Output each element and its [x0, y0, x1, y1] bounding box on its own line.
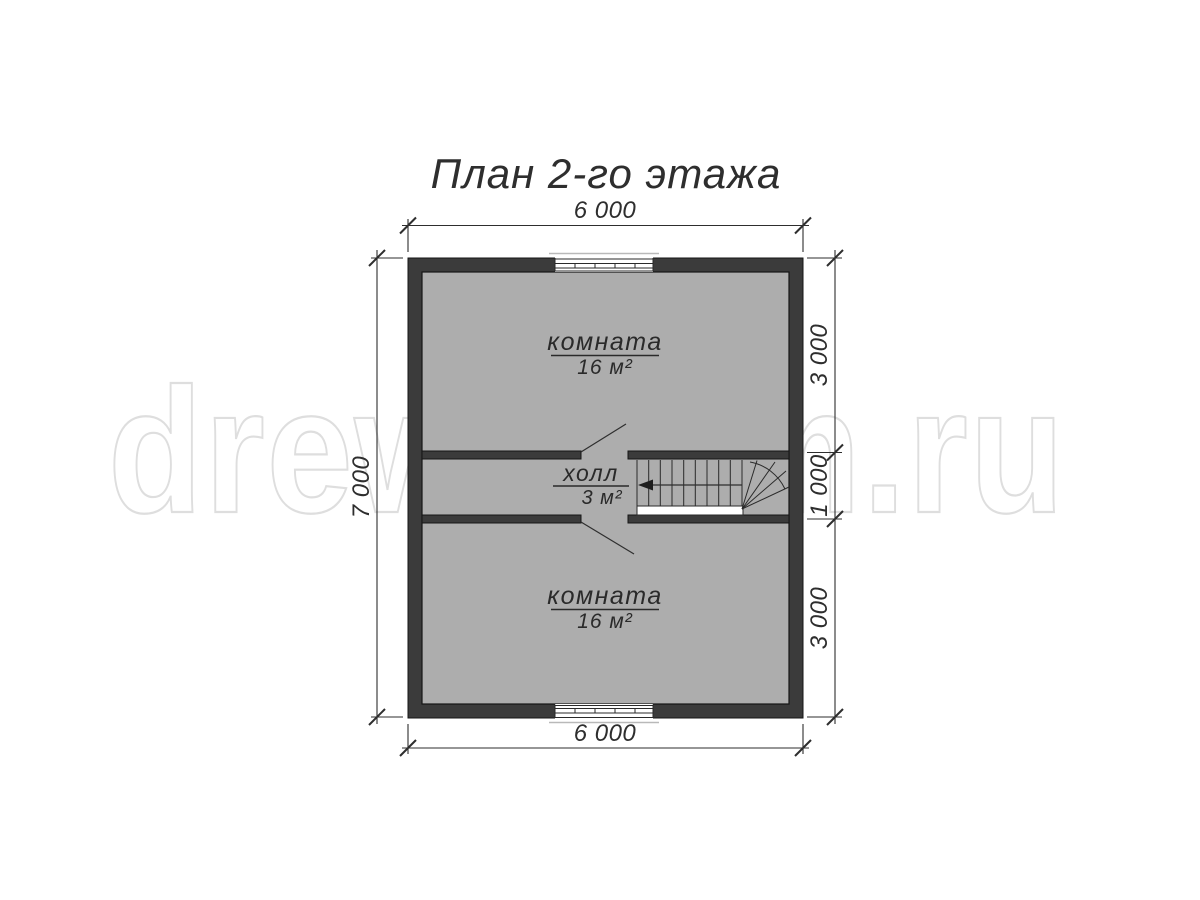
room-area-lower: 16 м²	[577, 610, 633, 633]
page-title: План 2-го этажа	[431, 150, 782, 197]
partition-lower-right	[628, 515, 789, 523]
room-area-hall: 3 м²	[581, 487, 622, 509]
partition-upper-right	[628, 451, 789, 459]
partition-lower-left	[422, 515, 581, 523]
window-opening	[555, 704, 653, 719]
room-label-hall: холл	[562, 460, 618, 486]
floor-plan-canvas: drew-dom.ru	[0, 0, 1200, 900]
window-opening	[555, 258, 653, 273]
floor-plan-page: drew-dom.ru	[0, 0, 1200, 900]
room-label-lower: комната	[547, 582, 662, 610]
dim-bottom-value: 6 000	[574, 720, 637, 747]
dim-right-upper-value: 3 000	[806, 324, 833, 387]
partition-upper-left	[422, 451, 581, 459]
dim-right-middle-value: 1 000	[806, 454, 833, 517]
dim-top-value: 6 000	[574, 197, 637, 224]
dim-right-lower-value: 3 000	[806, 587, 833, 650]
stair-stringer	[637, 506, 743, 515]
dim-left-value: 7 000	[348, 456, 375, 519]
room-label-upper: комната	[547, 328, 662, 356]
room-area-upper: 16 м²	[577, 356, 633, 379]
